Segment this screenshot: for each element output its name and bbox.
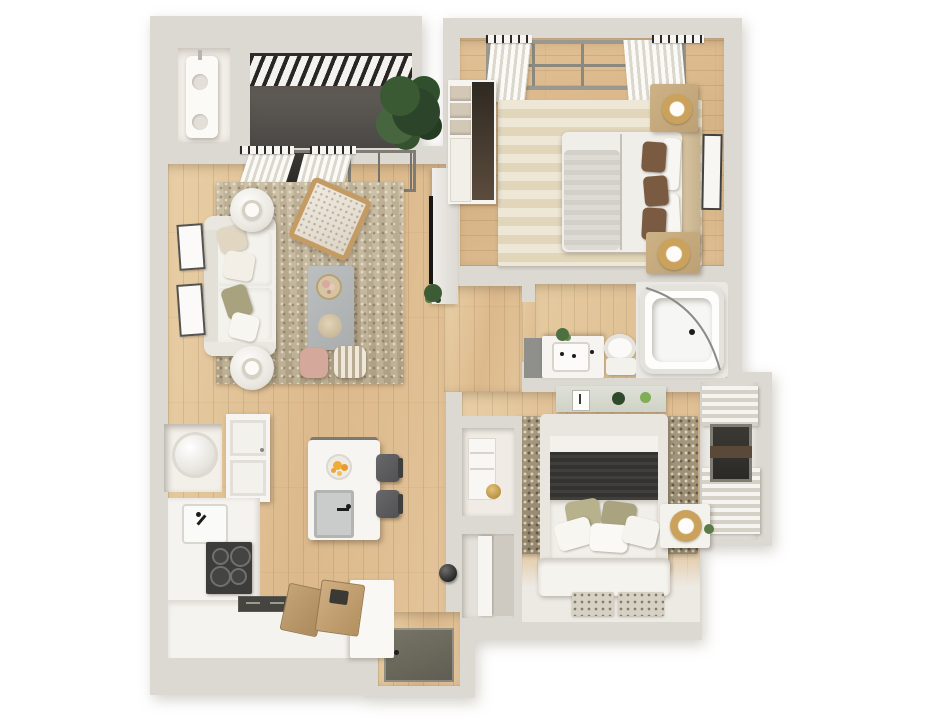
curtain-rod xyxy=(310,146,356,154)
cutting-board-inset xyxy=(329,589,349,605)
decor-tray-icon xyxy=(316,274,342,300)
faucet-icon xyxy=(196,512,201,517)
toilet-tank xyxy=(606,358,636,375)
console-card-mark xyxy=(579,394,581,404)
console-card-frame xyxy=(572,390,590,411)
burner-icon xyxy=(230,568,247,585)
gold-vase-icon xyxy=(486,484,501,499)
bedside-mat xyxy=(572,592,614,616)
closet-divider-wall xyxy=(462,516,516,534)
gold-lamp-icon xyxy=(658,238,690,270)
pouf xyxy=(334,346,366,378)
wardrobe-drawer xyxy=(450,103,471,118)
bathtub-basin xyxy=(652,298,712,362)
gold-lamp-icon xyxy=(662,94,692,124)
decor-bowl-icon xyxy=(318,314,342,338)
wall-art-frame xyxy=(701,134,722,210)
throw-pillow xyxy=(222,250,256,283)
bed2-foot-fold xyxy=(550,420,658,436)
open-door-leaf xyxy=(478,536,492,616)
bed1-accent-pillow xyxy=(641,141,667,173)
burner-icon xyxy=(230,546,251,567)
entry-mat xyxy=(384,628,454,682)
bar-stool xyxy=(376,490,400,518)
cabinet-handle-icon xyxy=(260,448,264,452)
appliance-handle xyxy=(246,602,260,604)
heater-pipe xyxy=(198,50,202,60)
bed2-dark-throw xyxy=(550,452,658,500)
vanity-sink xyxy=(552,342,590,372)
wardrobe-drawer xyxy=(450,120,471,135)
vanity-plant-icon xyxy=(556,328,569,341)
curtain-rod xyxy=(240,146,294,154)
closet-wall xyxy=(462,618,516,630)
bed1-accent-pillow xyxy=(643,175,670,207)
closet-shadow xyxy=(494,536,514,616)
bathroom-wall-panel xyxy=(524,338,544,378)
bedside-mat xyxy=(618,592,664,616)
wardrobe-drawer xyxy=(450,86,471,101)
bed1-blanket xyxy=(564,150,620,250)
faucet-icon xyxy=(346,504,351,509)
sofa-backrest xyxy=(204,216,218,356)
door-knob-icon xyxy=(439,564,457,582)
gold-lamp-icon xyxy=(670,510,702,542)
wall-art-frame xyxy=(176,283,206,337)
faucet-icon xyxy=(572,354,576,358)
door-handle-icon xyxy=(394,650,399,655)
washer-icon xyxy=(172,432,218,478)
dresser-drawer-line xyxy=(470,468,494,470)
heater-knob xyxy=(192,74,208,90)
cabinet-panel xyxy=(230,460,266,496)
fruit-icon xyxy=(333,461,342,470)
burner-icon xyxy=(212,548,229,565)
wardrobe-door xyxy=(450,138,471,202)
table-lamp-icon xyxy=(242,358,262,378)
console-plant-icon xyxy=(640,392,651,403)
balcony-plant-icon xyxy=(380,76,420,116)
cutting-board xyxy=(315,579,366,637)
faucet-icon xyxy=(560,352,564,356)
table-lamp-icon xyxy=(242,200,262,220)
console-plant-icon xyxy=(612,392,625,405)
curtain-rod xyxy=(652,35,704,43)
window-sill xyxy=(710,446,752,458)
floor-plant-icon xyxy=(424,284,442,302)
tv-icon xyxy=(429,196,433,284)
stool-back xyxy=(398,494,403,514)
heater-knob xyxy=(192,114,208,130)
island-sink xyxy=(314,490,354,538)
dresser-drawer-line xyxy=(470,452,494,454)
appliance-handle xyxy=(270,602,284,604)
faucet-icon xyxy=(590,350,594,354)
bar-stool xyxy=(376,454,400,482)
bed2-headboard xyxy=(538,558,670,596)
pouf xyxy=(300,348,328,378)
kitchen-sink xyxy=(182,504,228,544)
closet-wall xyxy=(462,416,516,428)
flowers-icon xyxy=(322,280,330,288)
wardrobe-interior xyxy=(472,82,494,200)
wall-art-frame xyxy=(176,223,205,271)
stool-back xyxy=(398,458,403,478)
bed1-duvet-crease xyxy=(620,134,622,250)
burner-icon xyxy=(210,566,231,587)
floor-plan-canvas xyxy=(0,0,930,720)
bedroom2-curtain xyxy=(702,386,758,426)
closet-east-wall xyxy=(514,416,522,630)
plant-sprig-icon xyxy=(704,524,714,534)
curtain-rod xyxy=(486,35,532,43)
